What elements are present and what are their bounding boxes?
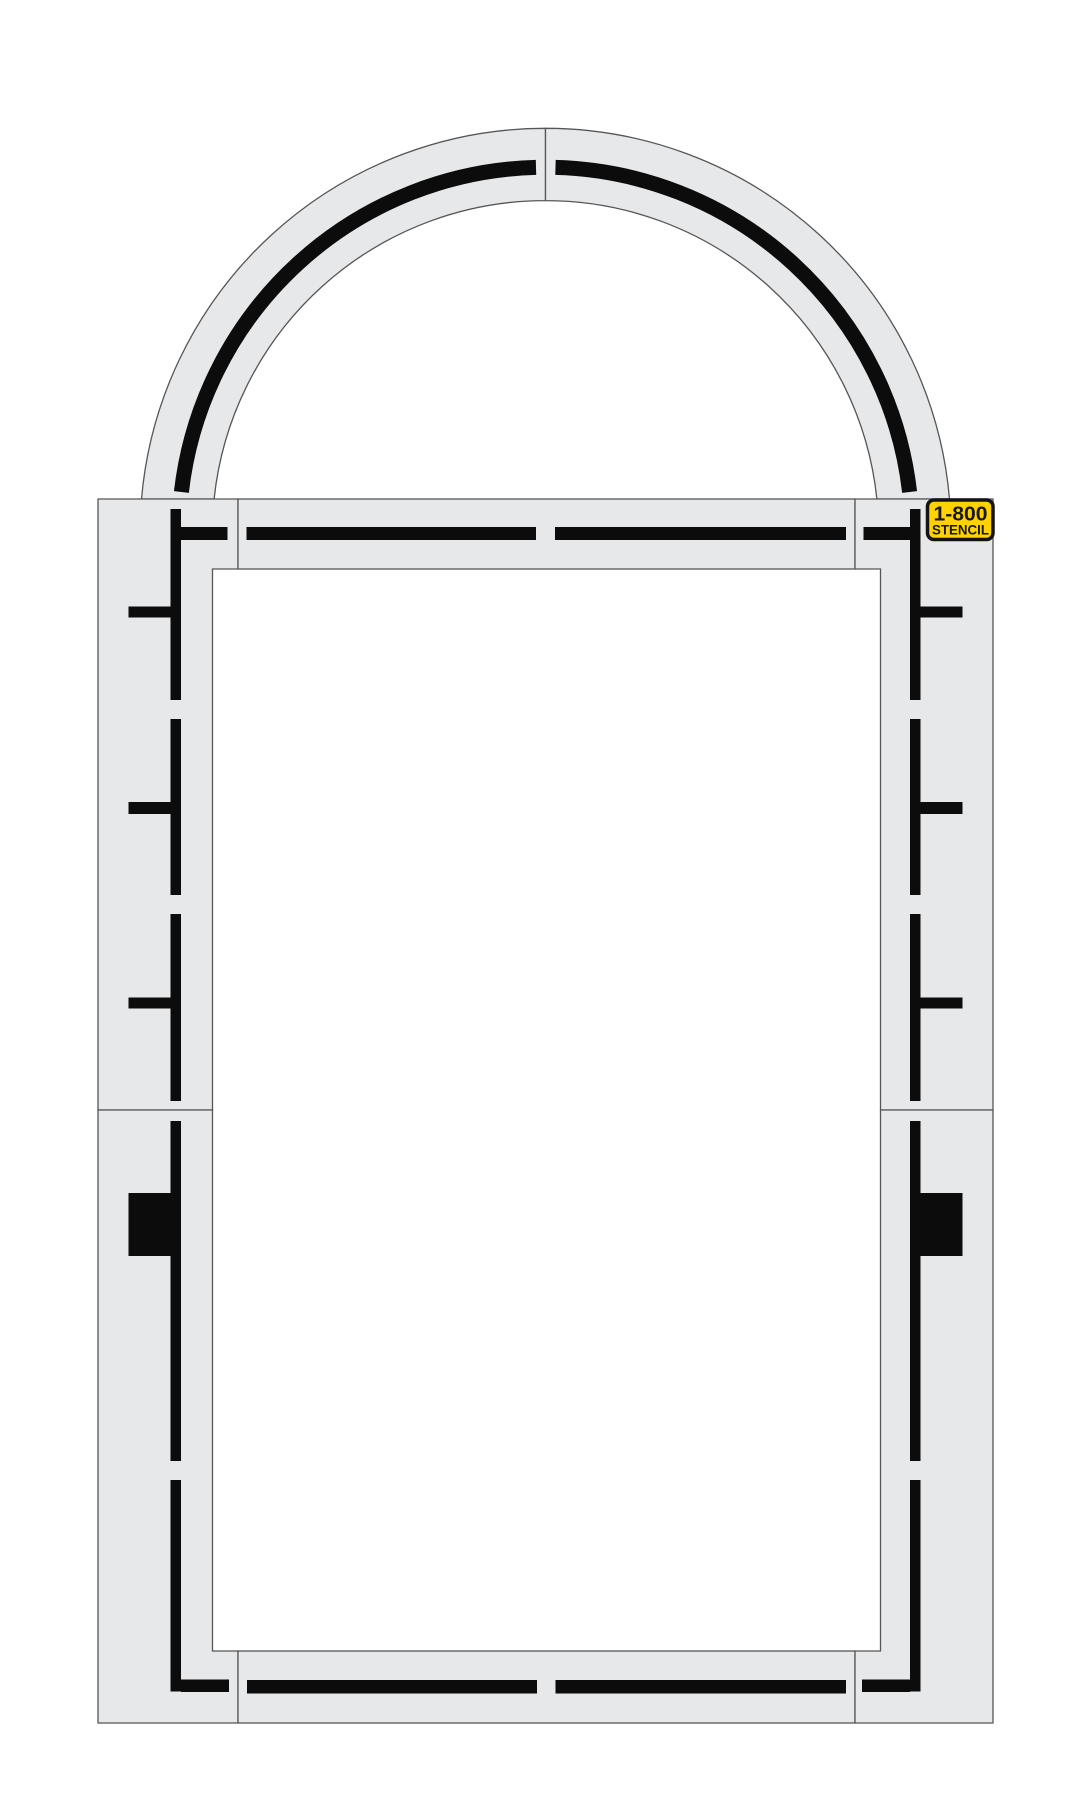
svg-text:STENCIL: STENCIL [932, 523, 989, 538]
